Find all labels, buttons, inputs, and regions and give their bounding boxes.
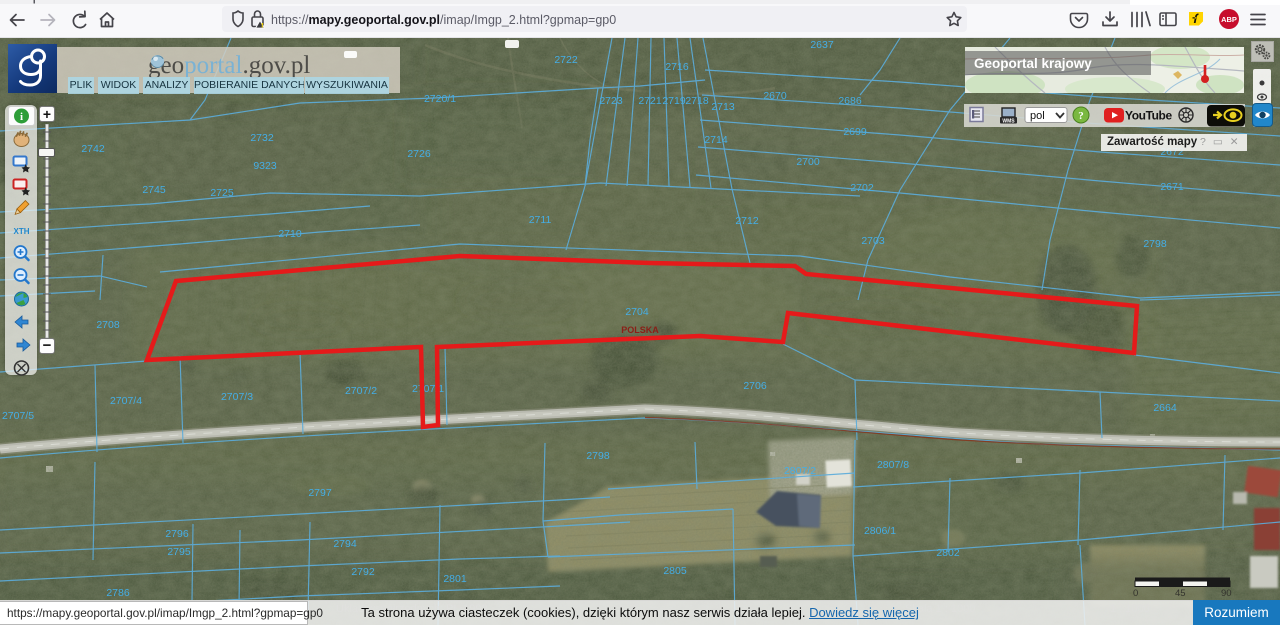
svg-text:2801: 2801 <box>443 573 467 585</box>
svg-text:2686: 2686 <box>838 95 862 107</box>
svg-text:2792: 2792 <box>351 566 375 578</box>
svg-text:2713: 2713 <box>711 101 735 113</box>
svg-text:2732: 2732 <box>250 132 274 144</box>
svg-text:2718: 2718 <box>685 95 709 107</box>
svg-text:2670: 2670 <box>763 90 787 102</box>
svg-text:XTH: XTH <box>14 227 30 236</box>
svg-text:2664: 2664 <box>1153 402 1177 414</box>
svg-text:ABP: ABP <box>1221 15 1237 24</box>
svg-text:2798: 2798 <box>1143 238 1167 250</box>
svg-text:2797: 2797 <box>308 487 332 499</box>
svg-text:2722: 2722 <box>554 54 578 66</box>
svg-text:45: 45 <box>1175 588 1186 599</box>
svg-text:90: 90 <box>1221 588 1232 599</box>
svg-text:?: ? <box>1078 110 1084 122</box>
svg-text:2795: 2795 <box>167 546 191 558</box>
svg-text:2671: 2671 <box>1160 181 1184 193</box>
svg-text:2712: 2712 <box>735 215 759 227</box>
svg-text:2706: 2706 <box>743 380 767 392</box>
svg-text:2805: 2805 <box>663 565 687 577</box>
svg-text:2720/1: 2720/1 <box>424 93 456 105</box>
svg-text:WMS: WMS <box>1002 118 1015 124</box>
svg-text:2723: 2723 <box>599 95 623 107</box>
svg-text:2703: 2703 <box>861 235 885 247</box>
svg-text:2707/5: 2707/5 <box>2 410 34 422</box>
svg-text:Geoportal krajowy: Geoportal krajowy <box>974 56 1092 71</box>
svg-text:pol: pol <box>1030 110 1045 122</box>
svg-text:2796: 2796 <box>165 528 189 540</box>
svg-text:i: i <box>20 111 23 123</box>
svg-text:2711: 2711 <box>529 214 552 226</box>
svg-text:2786: 2786 <box>106 587 130 599</box>
svg-text:2794: 2794 <box>333 538 357 550</box>
svg-text:2710: 2710 <box>278 228 302 240</box>
svg-text:2707/3: 2707/3 <box>221 391 253 403</box>
svg-text:2714: 2714 <box>704 134 728 146</box>
svg-text:2806/1: 2806/1 <box>864 525 896 537</box>
svg-text:2742: 2742 <box>81 143 105 155</box>
svg-text:2725: 2725 <box>210 187 234 199</box>
svg-text:2807/2: 2807/2 <box>784 465 816 477</box>
svg-text:2807/8: 2807/8 <box>877 459 909 471</box>
svg-text:0: 0 <box>1133 588 1138 599</box>
svg-text:2798: 2798 <box>586 450 610 462</box>
svg-text:9323: 9323 <box>253 160 277 172</box>
svg-text:2745: 2745 <box>142 184 166 196</box>
svg-text:2719: 2719 <box>662 95 686 107</box>
svg-text:2802: 2802 <box>936 547 960 559</box>
svg-text:2637: 2637 <box>810 39 834 51</box>
svg-text:2708: 2708 <box>96 319 120 331</box>
svg-text:2700: 2700 <box>796 156 820 168</box>
svg-text:2716: 2716 <box>665 61 689 73</box>
svg-text:2704: 2704 <box>625 306 649 318</box>
svg-text:2721: 2721 <box>638 95 662 107</box>
svg-text:2707/2: 2707/2 <box>345 385 377 397</box>
svg-text:POLSKA: POLSKA <box>621 325 659 335</box>
svg-text:2707/4: 2707/4 <box>110 395 142 407</box>
svg-text:YouTube: YouTube <box>1125 109 1172 123</box>
svg-text:2726: 2726 <box>407 148 431 160</box>
svg-text:2702: 2702 <box>850 182 874 194</box>
svg-text:2699: 2699 <box>843 126 867 138</box>
